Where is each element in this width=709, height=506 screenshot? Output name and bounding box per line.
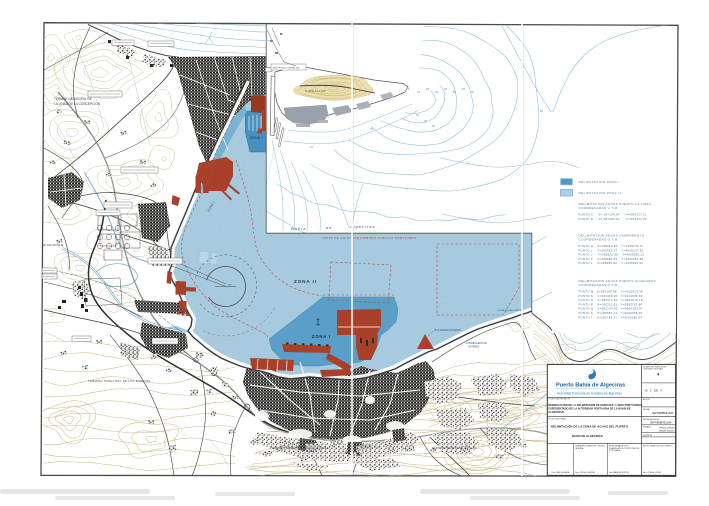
- svg-text:EL RINCONCILLO: EL RINCONCILLO: [355, 445, 381, 449]
- svg-text:Fdo: JORGE GUERRA: Fdo: JORGE GUERRA: [575, 471, 595, 474]
- svg-text:ZONA I: ZONA I: [312, 334, 331, 339]
- svg-text:GUERRA: GUERRA: [575, 447, 584, 450]
- svg-text:AUTOR: AUTOR: [643, 398, 650, 401]
- svg-text:COORDENADAS U.T.M.: COORDENADAS U.T.M.: [579, 206, 619, 210]
- svg-text:ZONA II: ZONA II: [294, 279, 317, 284]
- svg-text:Autoridad Portuaria de la Bahí: Autoridad Portuaria de la Bahía de Algec…: [557, 391, 622, 395]
- svg-text:DIN A3 1/50000: DIN A3 1/50000: [659, 429, 675, 432]
- svg-text:PUNTA DE SAN GARCIA: PUNTA DE SAN GARCIA: [497, 309, 522, 312]
- svg-text:Nº 2 DE 4: Nº 2 DE 4: [645, 388, 662, 392]
- svg-text:TITULO DEL PROYECTO: TITULO DEL PROYECTO: [548, 399, 570, 401]
- svg-text:TITULO DEL PLANO: TITULO DEL PLANO: [548, 417, 566, 420]
- svg-text:FECHA REVISION: FECHA REVISION: [643, 418, 659, 421]
- svg-text:PUNTO T X=280788.37 Y=40: PUNTO T X=280788.37 Y=4000080.84: [579, 315, 643, 319]
- svg-text:PORTUARIA: PORTUARIA: [609, 449, 621, 452]
- svg-text:Bahía: Bahía: [291, 226, 306, 231]
- svg-text:DE SAN ROQUE: DE SAN ROQUE: [42, 243, 64, 247]
- svg-text:DIN A1 1/25000: DIN A1 1/25000: [659, 426, 675, 429]
- svg-text:GETARES: GETARES: [468, 346, 480, 349]
- svg-text:DELIMITACION ZONA I: DELIMITACION ZONA I: [579, 180, 620, 184]
- svg-text:Fdo: EL DIRECTOR DEL PUERTO: Fdo: EL DIRECTOR DEL PUERTO: [643, 445, 673, 447]
- svg-text:COORDENADAS U.T.M.: COORDENADAS U.T.M.: [579, 283, 619, 287]
- svg-text:Puerto Bahía de Algeciras: Puerto Bahía de Algeciras: [556, 383, 625, 389]
- svg-text:ZONA I: ZONA I: [250, 136, 263, 140]
- svg-text:DELIMITACION ZONA II: DELIMITACION ZONA II: [579, 191, 622, 195]
- svg-text:de: de: [326, 225, 332, 230]
- svg-text:ISLA VERDE EXTERIOR: ISLA VERDE EXTERIOR: [434, 329, 461, 332]
- svg-text:COORDENADAS U.T.M.: COORDENADAS U.T.M.: [579, 238, 619, 242]
- svg-text:TERMINO MUNICIPAL DE ALGECIRAS: TERMINO MUNICIPAL DE ALGECIRAS: [270, 446, 329, 450]
- svg-text:AEROPUERTO GIBRALTAR: AEROPUERTO GIBRALTAR: [273, 66, 300, 69]
- svg-text:FECHA: FECHA: [643, 408, 650, 411]
- svg-text:Fdo: JEFE DE AREA: Fdo: JEFE DE AREA: [552, 471, 570, 474]
- svg-text:LIMITE DE AGUAS DE DOMINIO PUB: LIMITE DE AGUAS DE DOMINIO PUBLICO PORTU…: [321, 236, 417, 240]
- svg-text:TERMINO MUNICIPAL DE ALG: TERMINO MUNICIPAL DE ALG: [432, 446, 476, 450]
- svg-text:TERMINO MUNICIPAL DE: TERMINO MUNICIPAL DE: [54, 97, 92, 101]
- svg-text:BAHÍA DE ALGECIRAS: BAHÍA DE ALGECIRAS: [572, 433, 603, 438]
- svg-text:ESCALA: ESCALA: [643, 426, 651, 429]
- svg-text:PUNTO L X=285986.82 Y=4: PUNTO L X=285986.82 Y=4008518.80: [579, 261, 644, 265]
- svg-text:LA LINEA DE LA CONCEPCION: LA LINEA DE LA CONCEPCION: [54, 102, 101, 106]
- svg-text:TERMINO MUNICIPAL DE LOS BARRI: TERMINO MUNICIPAL DE LOS BARRIOS: [88, 379, 151, 383]
- svg-text:Fdo: MANUEL MORON: Fdo: MANUEL MORON: [609, 471, 630, 474]
- svg-text:DELIMITACIÓN DE LA ZONA DE AGU: DELIMITACIÓN DE LA ZONA DE AGUAS DEL PUE…: [551, 424, 629, 429]
- svg-text:CONJUNTO DE HOJAS: CONJUNTO DE HOJAS: [643, 368, 663, 371]
- svg-text:SEPTIEMBRE 2004: SEPTIEMBRE 2004: [652, 412, 674, 415]
- svg-text:REVISION: REVISION: [643, 435, 653, 437]
- svg-text:SEPTIEMBRE 2004: SEPTIEMBRE 2004: [650, 422, 672, 425]
- svg-text:GIBRALTAR: GIBRALTAR: [305, 89, 326, 93]
- svg-text:PUNTO D X= 287683.92: PUNTO D X= 287683.92 Y=4004441.82: [579, 217, 648, 221]
- svg-text:ALGECIRAS.: ALGECIRAS.: [548, 410, 564, 414]
- svg-text:Fdo: JOSE A. LOPEZ: Fdo: JOSE A. LOPEZ: [643, 471, 662, 474]
